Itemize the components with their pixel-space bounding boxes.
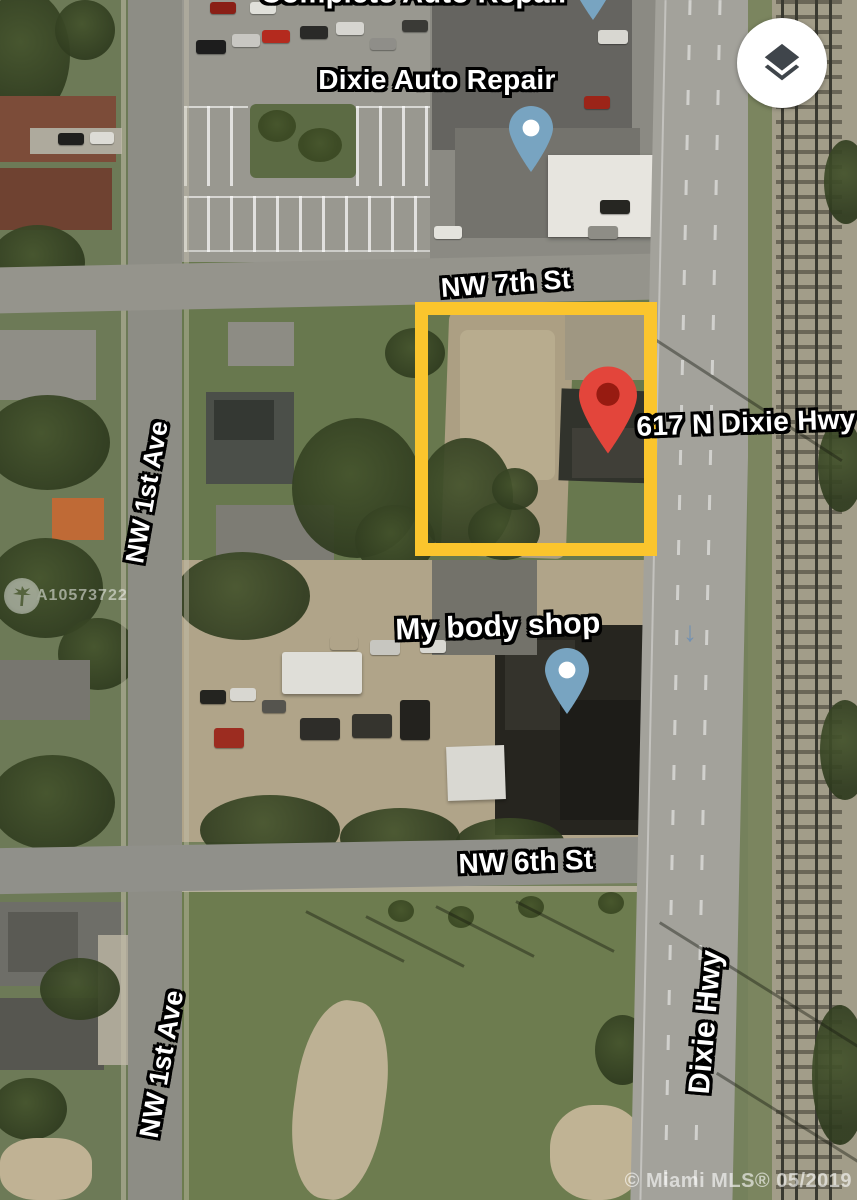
poi-pin-my-body-shop[interactable]: [545, 648, 589, 714]
parked-car: [434, 226, 462, 239]
parked-car: [300, 26, 328, 39]
parked-car: [214, 728, 244, 748]
house-gray-roof: [0, 330, 96, 400]
map-layers-button[interactable]: [737, 18, 827, 108]
palm-tree: [598, 892, 624, 914]
parked-car: [196, 40, 226, 54]
mls-logo-icon: [4, 578, 40, 614]
palm-tree: [298, 128, 342, 162]
white-truck-trailer: [282, 652, 362, 694]
red-marker-icon: [579, 366, 637, 454]
parked-car: [262, 700, 286, 713]
street-label-nw-6th-st: NW 6th St: [458, 844, 594, 881]
rail: [795, 0, 798, 1200]
palm-tree: [388, 900, 414, 922]
parked-car: [232, 34, 260, 47]
parked-car: [200, 690, 226, 704]
property-marker-pin[interactable]: [579, 366, 637, 454]
house-orange-roof: [52, 498, 104, 540]
poi-label-dixie-auto-repair: Dixie Auto Repair: [318, 64, 555, 96]
parked-car: [230, 688, 256, 701]
parked-car: [584, 96, 610, 109]
house-gray-roof: [0, 660, 90, 720]
white-tent: [446, 745, 506, 801]
parking-stripes: [356, 106, 430, 186]
parked-car: [600, 200, 630, 214]
map-pin-icon: [509, 106, 553, 172]
sand-patch: [0, 1138, 92, 1200]
mls-number: A10573722: [36, 587, 128, 605]
parked-car: [588, 226, 618, 239]
house-brown-roof: [0, 168, 112, 230]
parked-car: [400, 700, 430, 740]
tree: [175, 552, 310, 640]
building-roof-detail: [214, 400, 274, 440]
poi-label-my-body-shop: My body shop: [395, 606, 601, 647]
tree: [55, 0, 115, 60]
parking-stripes: [184, 106, 248, 186]
building-white-canopy: [548, 155, 658, 237]
poi-label-top-cutoff: Complete Auto Repair: [260, 0, 569, 11]
parked-car: [598, 30, 628, 44]
parked-car: [58, 133, 84, 145]
one-way-arrow-icon: ↓: [683, 616, 697, 648]
palm-tree: [258, 110, 296, 142]
parked-car: [352, 714, 392, 738]
map-pin-icon: [545, 648, 589, 714]
rail: [781, 0, 784, 1200]
parked-car: [262, 30, 290, 43]
parked-car: [90, 132, 114, 144]
parked-car: [210, 2, 236, 14]
mls-watermark: A10573722: [4, 578, 128, 614]
layers-icon: [759, 40, 805, 86]
poi-pin-dixie-auto-repair[interactable]: [509, 106, 553, 172]
tree: [40, 958, 120, 1020]
parked-car: [402, 20, 428, 32]
parking-stripes: [184, 196, 430, 252]
copyright-watermark: © Miami MLS® 05/2019: [625, 1170, 852, 1193]
parked-car: [370, 38, 396, 50]
building-roof-detail: [560, 700, 650, 820]
parked-car: [330, 636, 358, 650]
parked-car: [300, 718, 340, 740]
parked-car: [336, 22, 364, 35]
satellite-map[interactable]: ↓ Complete Auto R: [0, 0, 857, 1200]
map-pin-icon: [567, 0, 619, 20]
house-gray-roof: [228, 322, 294, 366]
poi-pin-top-cutoff[interactable]: [567, 0, 619, 20]
